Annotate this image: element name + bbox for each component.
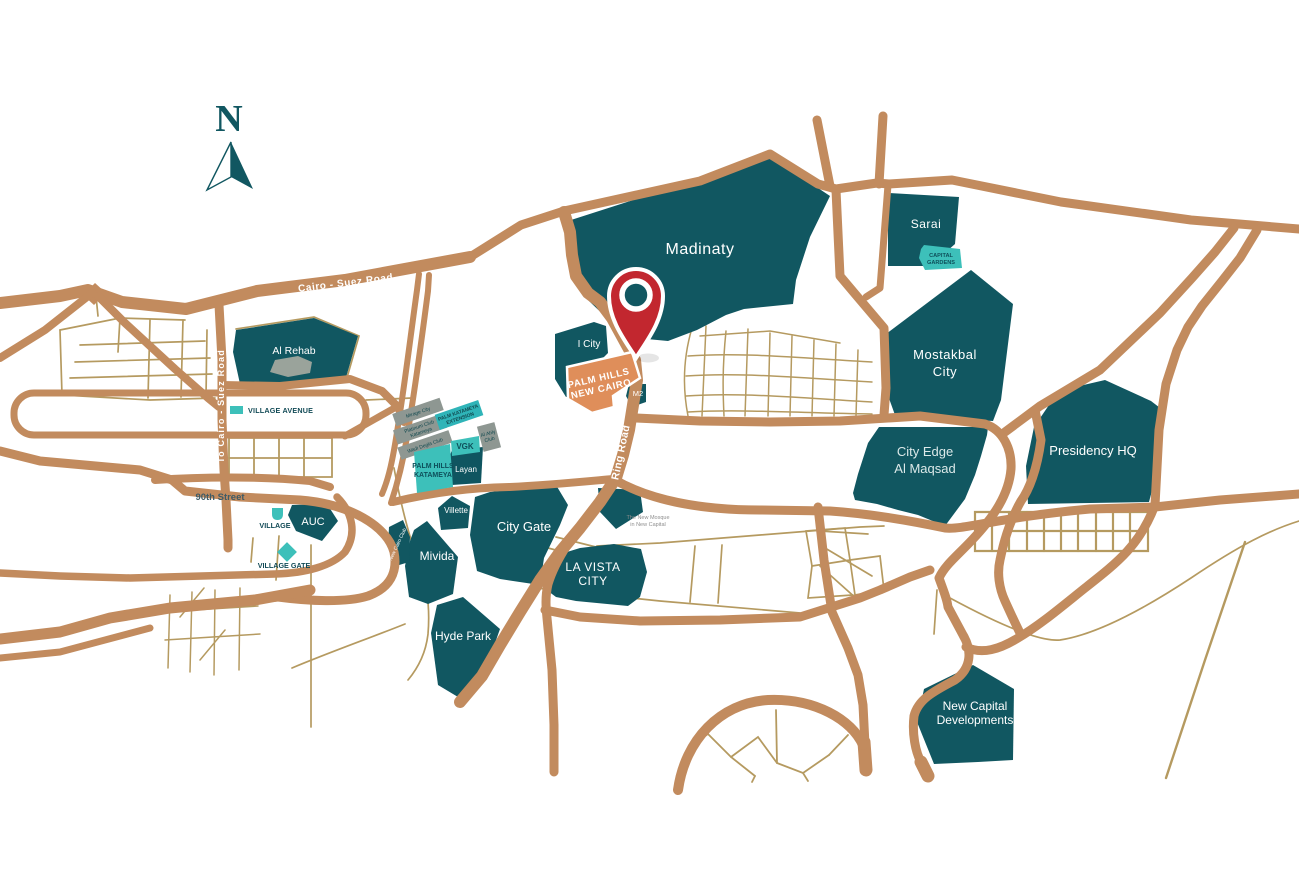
svg-text:City Gate: City Gate	[497, 519, 551, 534]
svg-text:GARDENS: GARDENS	[927, 260, 955, 266]
svg-text:in New Capital: in New Capital	[630, 522, 665, 528]
svg-text:Madinaty: Madinaty	[666, 241, 735, 258]
svg-text:To Cairo - Suez Road: To Cairo - Suez Road	[216, 349, 226, 463]
svg-text:Mivida: Mivida	[420, 549, 455, 563]
svg-text:Presidency HQ: Presidency HQ	[1049, 443, 1136, 458]
svg-text:The New Mosque: The New Mosque	[626, 515, 669, 521]
svg-text:KATAMEYA: KATAMEYA	[414, 472, 452, 479]
svg-text:PALM HILLS: PALM HILLS	[412, 463, 454, 470]
svg-text:VILLAGE GATE: VILLAGE GATE	[258, 561, 311, 570]
svg-text:I City: I City	[578, 339, 601, 350]
svg-text:Developments: Developments	[937, 713, 1014, 727]
svg-text:Layan: Layan	[455, 465, 477, 474]
svg-text:VILLAGE: VILLAGE	[259, 521, 290, 530]
svg-text:VGK: VGK	[456, 442, 474, 451]
svg-text:90th Street: 90th Street	[195, 492, 245, 503]
svg-text:LA VISTA: LA VISTA	[565, 560, 620, 574]
svg-text:AUC: AUC	[301, 516, 324, 528]
svg-text:Hyde Park: Hyde Park	[435, 629, 492, 643]
svg-text:M2: M2	[633, 389, 643, 398]
svg-text:City Edge: City Edge	[897, 444, 953, 459]
svg-text:Al Maqsad: Al Maqsad	[894, 461, 955, 476]
svg-text:N: N	[215, 98, 242, 140]
svg-text:City: City	[933, 364, 957, 379]
svg-text:VILLAGE AVENUE: VILLAGE AVENUE	[248, 406, 313, 415]
svg-text:Sarai: Sarai	[911, 217, 942, 231]
svg-text:Al Rehab: Al Rehab	[272, 345, 315, 357]
svg-text:Villette: Villette	[444, 506, 468, 515]
svg-text:New Capital: New Capital	[943, 699, 1008, 713]
svg-text:CITY: CITY	[578, 574, 607, 588]
svg-text:CAPITAL: CAPITAL	[929, 253, 953, 259]
svg-text:Mostakbal: Mostakbal	[913, 347, 977, 362]
